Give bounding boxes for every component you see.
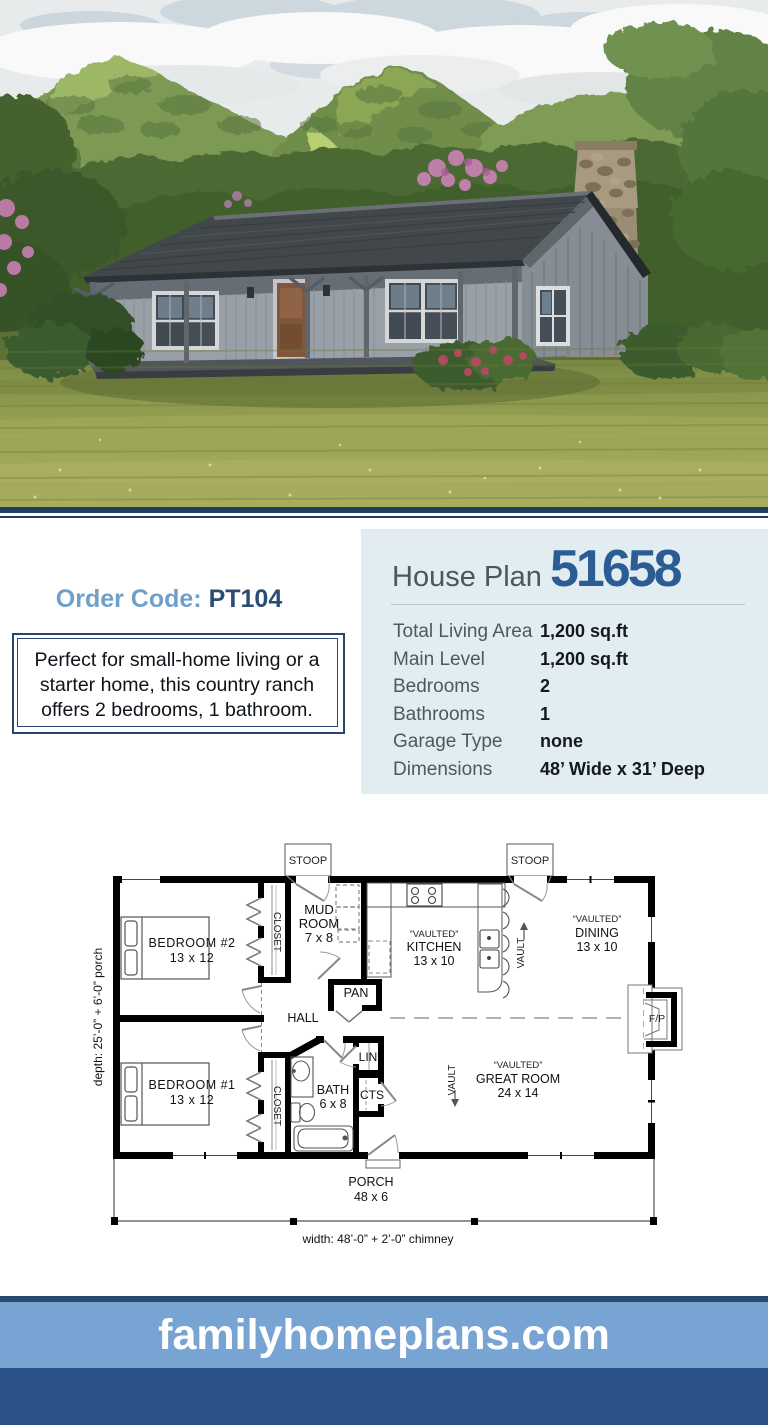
svg-text:BATH: BATH: [317, 1083, 349, 1097]
svg-text:PAN: PAN: [344, 986, 369, 1000]
svg-text:STOOP: STOOP: [289, 855, 327, 867]
svg-text:13 x 12: 13 x 12: [170, 951, 215, 965]
svg-text:width: 48’-0” + 2’-0” chimney: width: 48’-0” + 2’-0” chimney: [301, 1232, 453, 1246]
svg-text:MUD: MUD: [304, 902, 334, 917]
svg-text:“VAULTED”: “VAULTED”: [573, 914, 622, 925]
svg-text:13 x 10: 13 x 10: [576, 940, 617, 954]
svg-text:“VAULTED”: “VAULTED”: [494, 1060, 543, 1071]
svg-text:CLOSET: CLOSET: [271, 912, 282, 952]
svg-text:KITCHEN: KITCHEN: [407, 940, 462, 954]
svg-text:13 x 10: 13 x 10: [413, 954, 454, 968]
svg-text:24 x 14: 24 x 14: [497, 1086, 538, 1100]
svg-text:VAULT: VAULT: [447, 1065, 458, 1096]
svg-text:STOOP: STOOP: [511, 855, 549, 867]
svg-text:BEDROOM #1: BEDROOM #1: [149, 1078, 236, 1092]
svg-text:BEDROOM #2: BEDROOM #2: [149, 936, 236, 950]
svg-text:6 x 8: 6 x 8: [319, 1097, 346, 1111]
svg-text:“VAULTED”: “VAULTED”: [410, 929, 459, 940]
svg-text:7 x 8: 7 x 8: [305, 930, 333, 945]
svg-text:48 x 6: 48 x 6: [354, 1190, 388, 1204]
svg-text:ROOM: ROOM: [299, 916, 339, 931]
svg-text:13 x 12: 13 x 12: [170, 1093, 215, 1107]
svg-text:CTS: CTS: [360, 1088, 384, 1102]
svg-text:GREAT ROOM: GREAT ROOM: [476, 1072, 560, 1086]
svg-text:LIN: LIN: [359, 1050, 378, 1064]
svg-text:CLOSET: CLOSET: [271, 1086, 282, 1126]
svg-text:DINING: DINING: [575, 926, 619, 940]
svg-text:VAULT: VAULT: [516, 938, 527, 969]
svg-text:HALL: HALL: [287, 1011, 318, 1025]
svg-text:depth: 25’-0” + 6’-0” porch: depth: 25’-0” + 6’-0” porch: [91, 948, 105, 1086]
svg-text:PORCH: PORCH: [348, 1175, 393, 1189]
svg-text:F/P: F/P: [649, 1013, 665, 1025]
